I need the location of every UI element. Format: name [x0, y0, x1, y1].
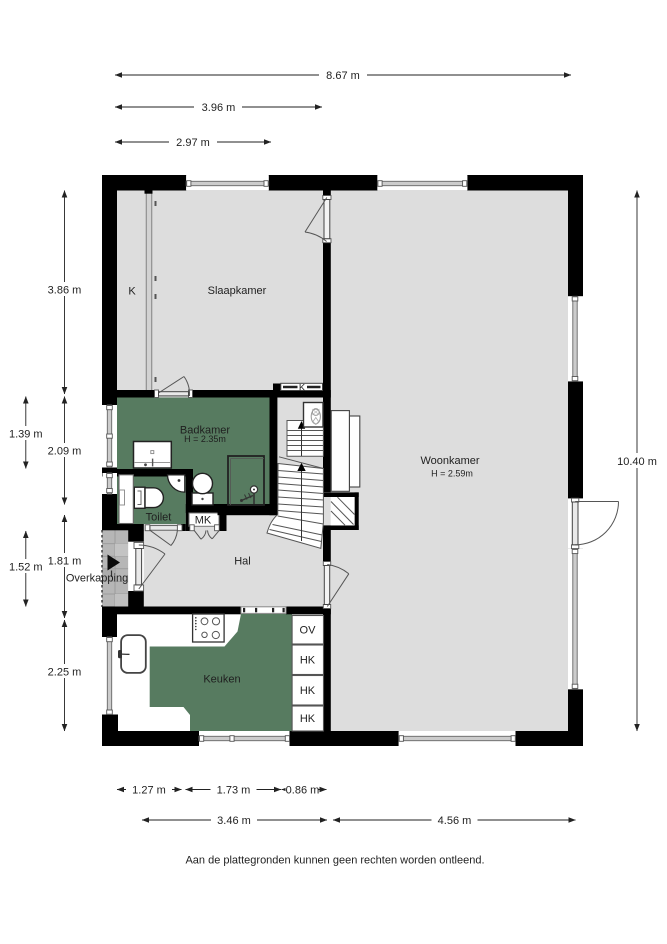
- svg-text:MK: MK: [195, 515, 212, 527]
- svg-text:Hal: Hal: [234, 556, 251, 568]
- svg-text:OV: OV: [300, 625, 317, 637]
- svg-text:8.67 m: 8.67 m: [326, 70, 360, 82]
- svg-text:1.27 m: 1.27 m: [132, 785, 166, 797]
- svg-text:3.46 m: 3.46 m: [217, 815, 251, 827]
- svg-text:0.86 m: 0.86 m: [286, 785, 320, 797]
- svg-text:2.09 m: 2.09 m: [48, 446, 82, 458]
- svg-text:Aan de plattegronden kunnen ge: Aan de plattegronden kunnen geen rechten…: [185, 855, 484, 867]
- svg-text:Keuken: Keuken: [203, 674, 240, 686]
- svg-text:1.52 m: 1.52 m: [9, 562, 43, 574]
- svg-text:Woonkamer: Woonkamer: [420, 455, 479, 467]
- svg-text:HK: HK: [300, 655, 316, 667]
- svg-text:HK: HK: [300, 713, 316, 725]
- svg-text:2.25 m: 2.25 m: [48, 667, 82, 679]
- svg-text:10.40 m: 10.40 m: [617, 456, 657, 468]
- svg-text:Slaapkamer: Slaapkamer: [208, 285, 267, 297]
- svg-text:K: K: [299, 382, 306, 393]
- svg-text:H = 2.59m: H = 2.59m: [431, 469, 473, 479]
- svg-text:3.86 m: 3.86 m: [48, 285, 82, 297]
- svg-text:1.81 m: 1.81 m: [48, 556, 82, 568]
- svg-text:K: K: [128, 286, 136, 298]
- svg-text:1.39 m: 1.39 m: [9, 429, 43, 441]
- svg-text:1.73 m: 1.73 m: [217, 785, 251, 797]
- svg-text:Overkapping: Overkapping: [66, 573, 128, 585]
- svg-text:4.56 m: 4.56 m: [438, 815, 472, 827]
- svg-text:Toilet: Toilet: [146, 512, 172, 524]
- svg-text:2.97 m: 2.97 m: [176, 137, 210, 149]
- svg-text:HK: HK: [300, 685, 316, 697]
- svg-text:H = 2.35m: H = 2.35m: [184, 434, 226, 444]
- svg-text:3.96 m: 3.96 m: [202, 102, 236, 114]
